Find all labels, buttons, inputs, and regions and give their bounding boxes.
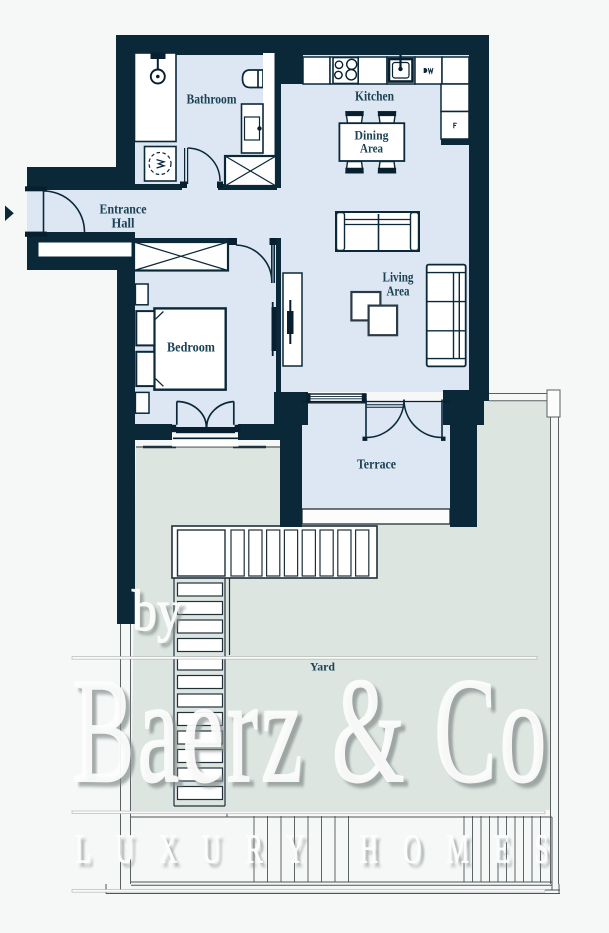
svg-text:Baerz & Co: Baerz & Co bbox=[72, 648, 546, 815]
svg-text:Entrance: Entrance bbox=[100, 203, 147, 218]
svg-text:Living: Living bbox=[383, 271, 414, 286]
svg-text:Area: Area bbox=[387, 285, 410, 300]
svg-text:Bedroom: Bedroom bbox=[167, 341, 215, 356]
svg-text:Area: Area bbox=[360, 141, 383, 156]
svg-text:Hall: Hall bbox=[112, 217, 135, 232]
svg-text:Kitchen: Kitchen bbox=[355, 90, 394, 105]
svg-text:by: by bbox=[132, 579, 182, 643]
svg-text:Terrace: Terrace bbox=[357, 458, 396, 473]
svg-text:Bathroom: Bathroom bbox=[187, 93, 237, 108]
